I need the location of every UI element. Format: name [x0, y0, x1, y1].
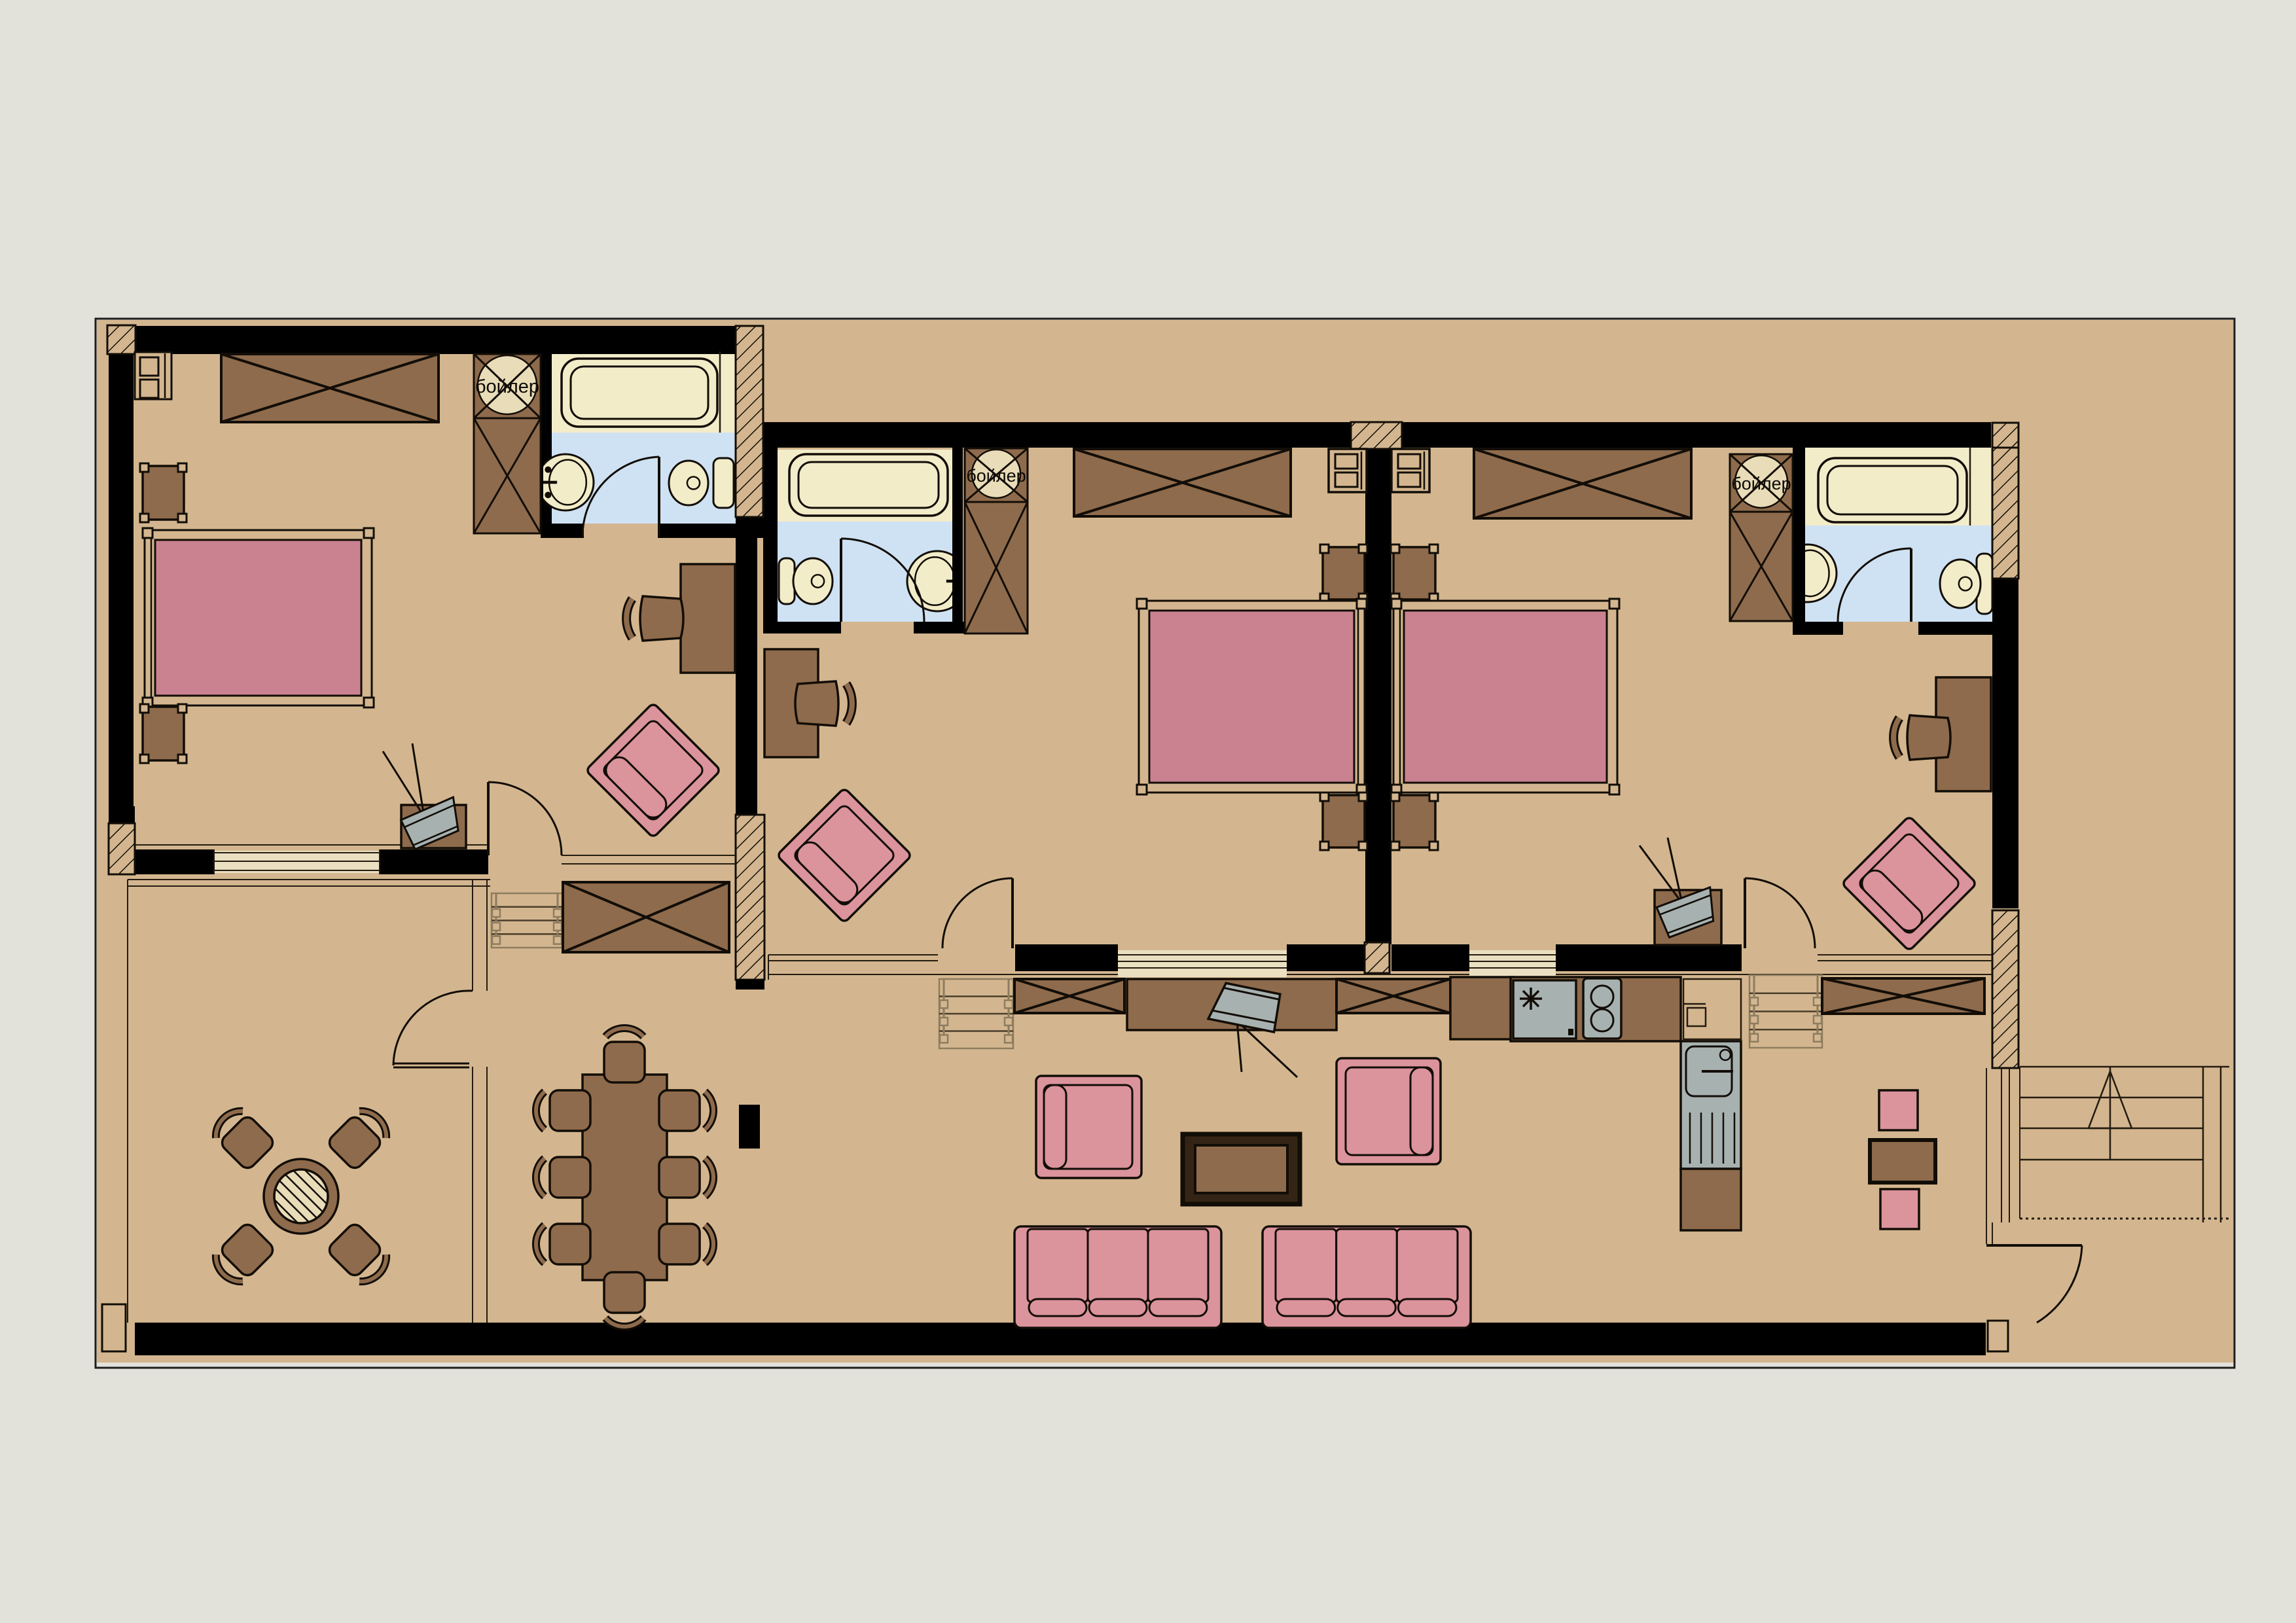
svg-text:бойлер: бойлер	[1731, 474, 1791, 493]
svg-text:бойлер: бойлер	[966, 466, 1026, 486]
svg-text:бойлер: бойлер	[475, 376, 539, 397]
